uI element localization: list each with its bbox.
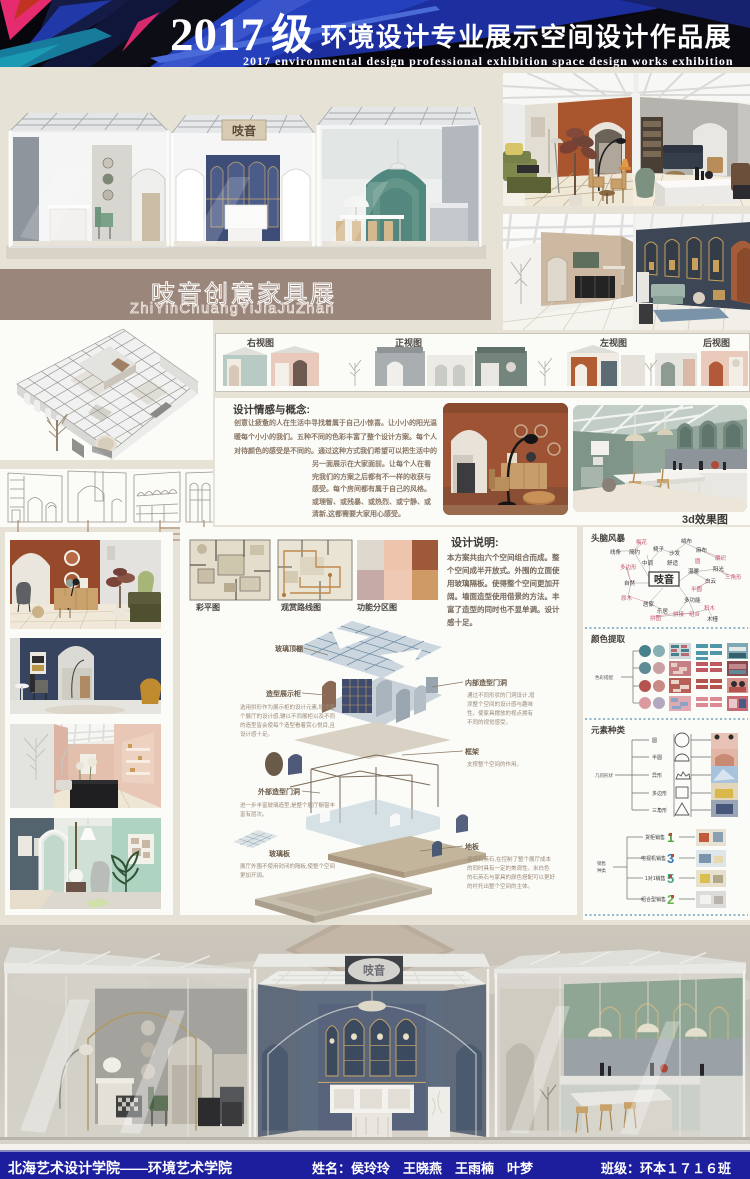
svg-text:支撑整个空间的作用。: 支撑整个空间的作用。	[467, 760, 522, 768]
svg-text:线条: 线条	[610, 548, 622, 556]
svg-text:组合: 组合	[689, 610, 701, 618]
svg-text:色彩搭配: 色彩搭配	[595, 674, 613, 681]
svg-text:种类: 种类	[597, 867, 606, 874]
svg-text:三角形: 三角形	[652, 807, 667, 814]
svg-text:5: 5	[667, 871, 674, 886]
svg-text:拼接: 拼接	[673, 610, 685, 618]
svg-text:吱音: 吱音	[232, 123, 256, 138]
svg-text:玻璃顶棚: 玻璃顶棚	[275, 644, 303, 653]
svg-text:通过不同形状的门洞设计,增: 通过不同形状的门洞设计,增	[467, 691, 535, 699]
svg-text:的石英石与家具的颜色搭配可以更好: 的石英石与家具的颜色搭配可以更好	[467, 873, 556, 881]
svg-text:进一步丰富玻璃造型,是整个展厅橱窗丰: 进一步丰富玻璃造型,是整个展厅橱窗丰	[240, 801, 336, 809]
svg-text:组合型销售: 组合型销售	[641, 896, 666, 903]
svg-text:异形: 异形	[652, 772, 662, 779]
svg-text:元素种类: 元素种类	[591, 725, 626, 735]
svg-text:后视图: 后视图	[703, 337, 730, 348]
svg-text:右视图: 右视图	[246, 337, 274, 348]
svg-text:颜色提取: 颜色提取	[591, 634, 626, 644]
svg-text:1: 1	[667, 830, 674, 845]
svg-text:温暖: 温暖	[688, 567, 700, 575]
svg-text:个空间成半开放式。外围的立面使: 个空间成半开放式。外围的立面使	[446, 565, 560, 575]
svg-text:级: 级	[271, 11, 313, 58]
svg-text:环境设计专业展示空间设计作品展: 环境设计专业展示空间设计作品展	[321, 22, 732, 52]
svg-text:3: 3	[667, 851, 674, 866]
svg-text:居家: 居家	[643, 600, 655, 608]
svg-text:货柜销售: 货柜销售	[645, 834, 665, 841]
svg-text:中调: 中调	[642, 559, 654, 567]
svg-text:吱音: 吱音	[363, 963, 385, 978]
svg-text:梅花: 梅花	[636, 538, 648, 546]
svg-text:1对1销售: 1对1销售	[645, 875, 666, 882]
svg-text:椅子: 椅子	[653, 545, 665, 553]
svg-text:半圆: 半圆	[691, 585, 703, 593]
svg-text:性。使家具摆放的视点拥有: 性。使家具摆放的视点拥有	[467, 709, 534, 717]
svg-text:选用拱形作为展示柜的设计元素,增添整: 选用拱形作为展示柜的设计元素,增添整	[240, 703, 336, 711]
svg-text:半圆: 半圆	[652, 754, 662, 761]
svg-text:阔。墙面造型使用借景的方法。丰: 阔。墙面造型使用借景的方法。丰	[447, 591, 560, 601]
svg-text:阳光: 阳光	[713, 565, 725, 573]
svg-text:多边形: 多边形	[620, 563, 637, 571]
svg-text:电视机销售: 电视机销售	[641, 855, 666, 862]
svg-text:造型展示柜: 造型展示柜	[266, 689, 301, 698]
svg-text:框架: 框架	[465, 747, 479, 756]
svg-text:销售: 销售	[597, 860, 606, 867]
svg-text:个展厅的设计感,辅以不同展柜以及不同: 个展厅的设计感,辅以不同展柜以及不同	[240, 712, 336, 720]
svg-text:2017 environmental design prof: 2017 environmental design professional e…	[243, 54, 734, 67]
svg-text:积木: 积木	[704, 604, 716, 612]
svg-text:圆: 圆	[695, 558, 701, 565]
svg-text:木槿: 木槿	[707, 615, 719, 623]
svg-text:麻布: 麻布	[696, 546, 708, 554]
svg-text:几何形状: 几何形状	[595, 772, 613, 779]
svg-text:不同的视觉感受。: 不同的视觉感受。	[467, 718, 511, 726]
svg-text:内部造型门洞: 内部造型门洞	[465, 678, 507, 687]
svg-text:三角形: 三角形	[725, 573, 742, 581]
svg-text:功能分区图: 功能分区图	[357, 602, 397, 612]
svg-text:多功能: 多功能	[684, 596, 701, 604]
svg-text:地板: 地板	[465, 842, 480, 851]
svg-text:绒布: 绒布	[681, 537, 693, 545]
svg-text:编织: 编织	[715, 554, 727, 562]
svg-text:的造型皆会使每个造型看着赏心悦目,且: 的造型皆会使每个造型看着赏心悦目,且	[240, 721, 336, 729]
svg-text:白云: 白云	[705, 577, 717, 585]
svg-text:外部造型门洞: 外部造型门洞	[258, 787, 300, 796]
svg-text:彩平图: 彩平图	[195, 602, 220, 612]
svg-text:设计说明:: 设计说明:	[451, 535, 499, 549]
svg-text:左视图: 左视图	[599, 337, 627, 348]
svg-text:乐居: 乐居	[657, 608, 669, 615]
svg-text:本方案共由六个空间组合而成。整: 本方案共由六个空间组合而成。整	[446, 552, 560, 562]
svg-text:多边形: 多边形	[652, 790, 667, 797]
svg-text:头脑风暴: 头脑风暴	[591, 533, 626, 543]
svg-text:富了造型的同时也不显单调。设计: 富了造型的同时也不显单调。设计	[447, 604, 560, 614]
svg-text:用玻璃隔板。使得整个空间更加开: 用玻璃隔板。使得整个空间更加开	[447, 578, 560, 588]
svg-text:原木: 原木	[621, 594, 633, 602]
svg-text:观赏路线图: 观赏路线图	[281, 602, 321, 612]
svg-text:自然: 自然	[624, 579, 636, 587]
svg-text:设计感十足。: 设计感十足。	[240, 730, 273, 738]
svg-text:圆: 圆	[652, 738, 657, 744]
svg-text:沙发: 沙发	[669, 549, 681, 557]
svg-text:富有层次。: 富有层次。	[240, 810, 268, 818]
svg-text:拼图: 拼图	[650, 614, 662, 622]
svg-text:2: 2	[667, 892, 674, 907]
svg-text:舒适: 舒适	[667, 559, 679, 567]
svg-text:感十足。: 感十足。	[447, 617, 477, 627]
svg-text:吱音: 吱音	[654, 573, 674, 586]
svg-text:添整个空间的设计感与趣味: 添整个空间的设计感与趣味	[467, 700, 534, 708]
svg-text:正视图: 正视图	[395, 337, 422, 348]
svg-text:简约: 简约	[629, 548, 641, 556]
